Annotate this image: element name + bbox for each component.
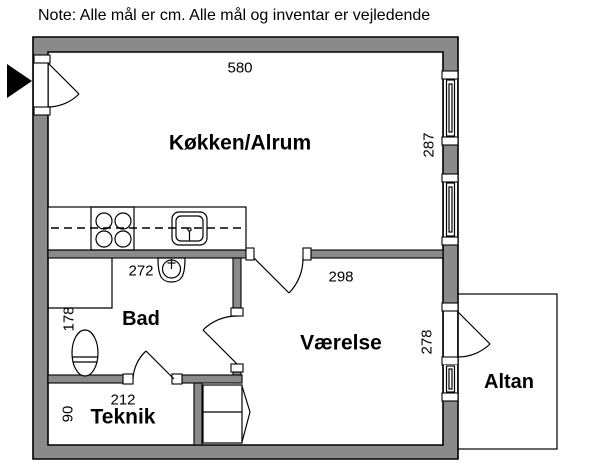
door-bath-tech xyxy=(123,351,182,384)
dim-bedroom-width: 298 xyxy=(328,270,353,285)
window-kitchen-upper xyxy=(442,71,458,145)
washbasin-icon xyxy=(158,258,185,282)
room-label-bedroom: Værelse xyxy=(300,333,382,354)
door-kitchen-bedroom xyxy=(246,248,311,293)
note-text: Note: Alle mål er cm. Alle mål og invent… xyxy=(38,7,430,25)
dim-tech-height: 90 xyxy=(61,406,76,423)
floor-plan: Note: Alle mål er cm. Alle mål og invent… xyxy=(0,0,600,472)
toilet-icon xyxy=(72,330,98,376)
dim-bedroom-height: 278 xyxy=(420,329,435,354)
window-kitchen-lower xyxy=(442,174,458,245)
balcony-window xyxy=(442,365,458,401)
room-label-bath: Bad xyxy=(122,309,160,329)
room-label-tech: Teknik xyxy=(91,407,156,428)
wardrobe xyxy=(203,385,250,443)
dim-kitchen-width: 580 xyxy=(227,61,252,76)
entrance-arrow-icon xyxy=(7,64,32,98)
room-label-balcony: Altan xyxy=(484,372,534,392)
dim-tech-width: 212 xyxy=(110,393,135,408)
room-label-kitchen: Køkken/Alrum xyxy=(169,133,311,154)
dim-kitchen-height: 287 xyxy=(422,132,437,157)
entrance-door xyxy=(34,55,79,115)
shower-boundary xyxy=(48,258,112,308)
dim-bath-height: 178 xyxy=(62,306,77,331)
dim-bath-width: 272 xyxy=(128,264,153,279)
floor-plan-drawing xyxy=(0,0,600,472)
kitchen-counter xyxy=(48,207,246,250)
door-bedroom-bath xyxy=(203,308,243,372)
